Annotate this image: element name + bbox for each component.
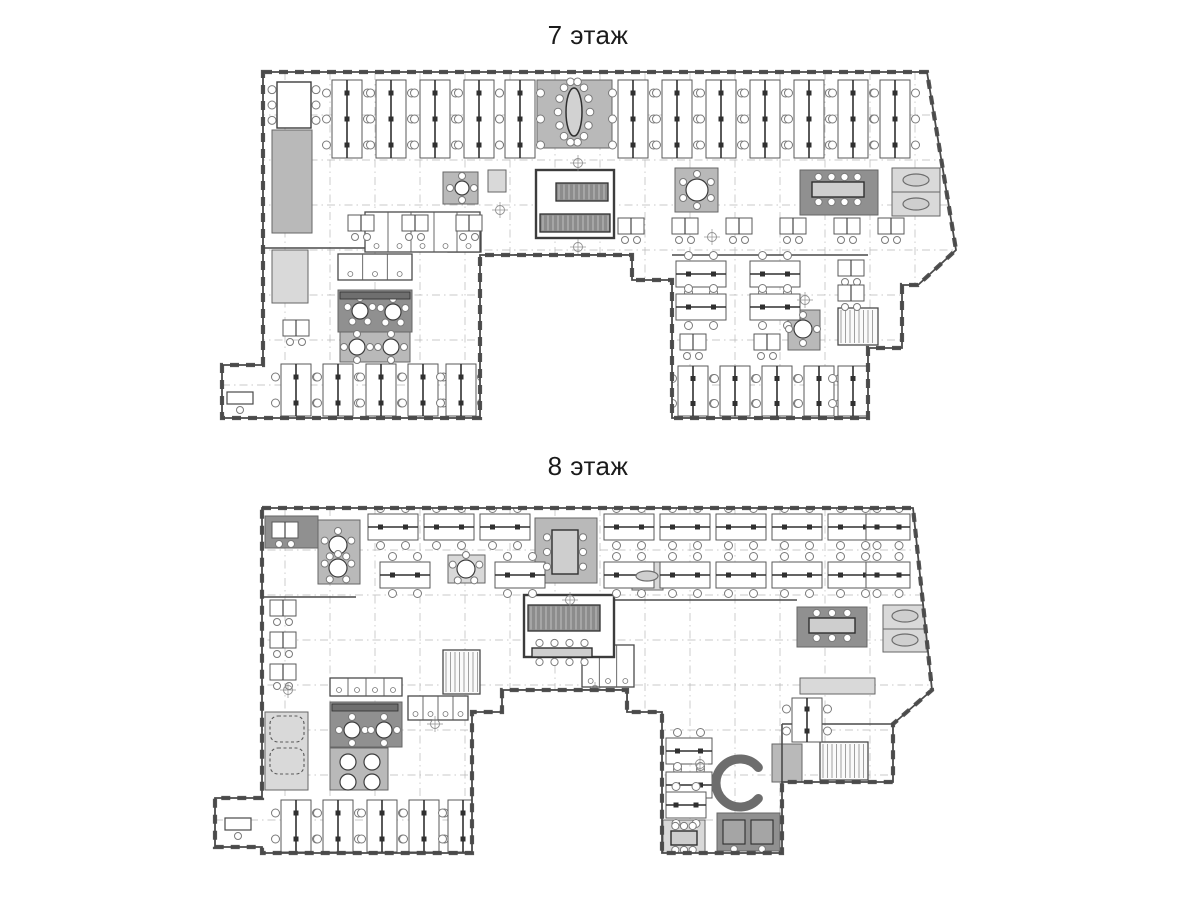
kitchen-counter — [340, 292, 410, 299]
meeting-table — [268, 82, 320, 128]
room — [800, 678, 875, 694]
wc-block — [408, 696, 468, 720]
room — [488, 170, 506, 192]
elevator-core — [536, 170, 614, 238]
desk-cluster — [653, 80, 702, 158]
sofa — [903, 174, 929, 186]
desk-cluster — [496, 80, 545, 158]
sofa — [892, 634, 918, 646]
meeting-table — [671, 822, 697, 853]
kitchen-counter — [332, 704, 398, 711]
desk-cluster — [367, 80, 416, 158]
floorplan-sheet: 7 этаж 8 этаж — [0, 0, 1200, 900]
floor-8-plan — [215, 505, 932, 854]
staircase — [838, 308, 878, 345]
desk-cluster — [741, 80, 790, 158]
room — [272, 250, 308, 303]
sofa — [636, 571, 658, 581]
floor-7-plan — [222, 72, 956, 418]
staircase — [820, 742, 868, 780]
round-table — [340, 774, 356, 790]
staircase — [443, 650, 480, 694]
room — [272, 130, 312, 233]
meeting-table — [543, 530, 586, 574]
floorplans-drawing — [0, 0, 1200, 900]
desk-cluster — [697, 80, 746, 158]
round-table — [340, 754, 356, 770]
sofa — [903, 198, 929, 210]
conference-table — [554, 78, 594, 146]
wc-block — [338, 254, 412, 280]
meeting-table — [809, 609, 855, 641]
desk-cluster — [785, 80, 834, 158]
desk-cluster — [871, 80, 920, 158]
wc-block — [330, 678, 402, 696]
round-table — [364, 754, 380, 770]
round-table — [364, 774, 380, 790]
desk-cluster — [411, 80, 460, 158]
balcony-cells — [510, 690, 627, 712]
balcony-cells — [515, 255, 627, 278]
desk-cluster — [323, 80, 372, 158]
sofa — [892, 610, 918, 622]
desk-cluster — [609, 80, 658, 158]
room — [772, 744, 802, 782]
